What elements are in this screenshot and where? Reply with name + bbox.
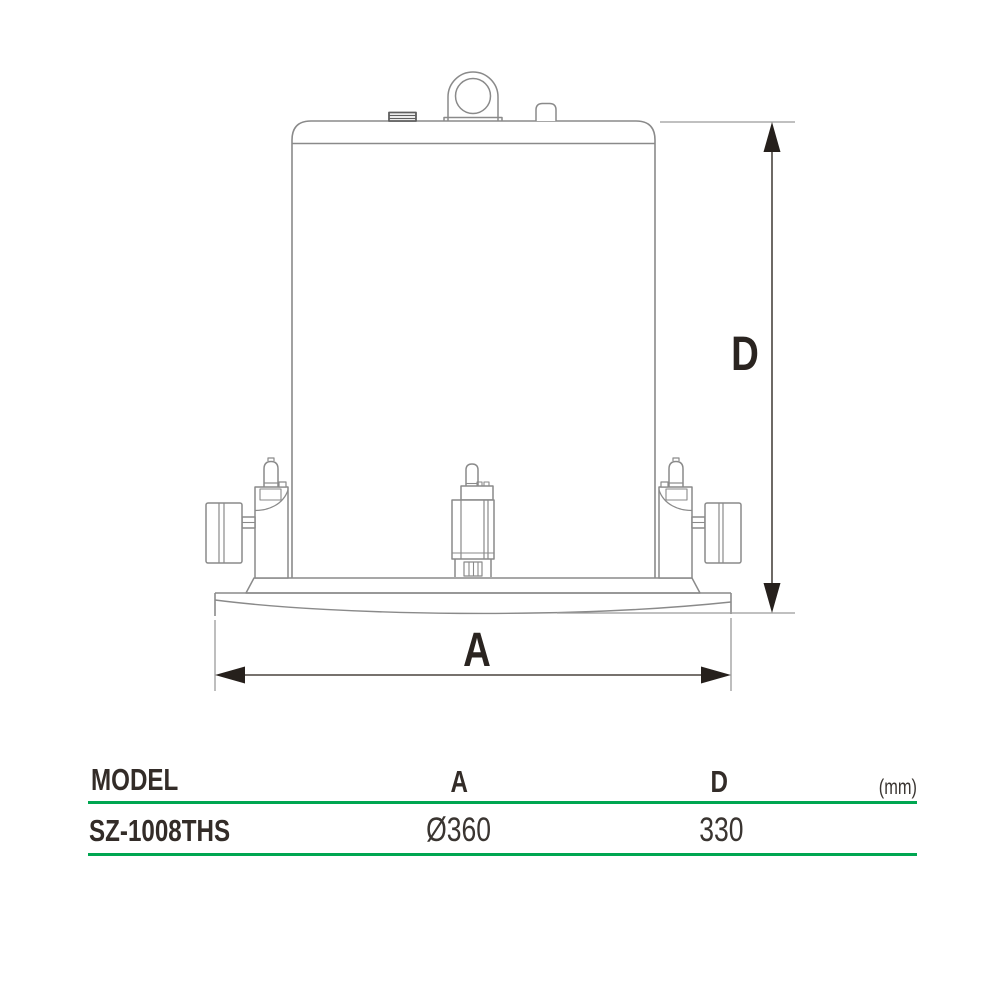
arrow-down-icon [764, 583, 781, 613]
table-header-model: MODEL [91, 762, 203, 798]
arrow-right-icon [701, 667, 731, 684]
top-terminal-block [389, 113, 416, 122]
top-bump [536, 104, 556, 122]
dimension-a: A [215, 618, 731, 691]
table-unit-label: (mm) [868, 776, 917, 800]
hanging-loop-icon [444, 72, 502, 121]
speaker-spec-sheet: D A MODEL A D (mm) SZ-1008 [0, 0, 1000, 1000]
arrow-up-icon [764, 122, 781, 152]
mounting-step-ring [246, 578, 700, 593]
table-divider-bottom [88, 853, 917, 856]
speaker-side-view-drawing: D A [0, 0, 1000, 760]
dimension-d-label: D [731, 328, 759, 381]
dimension-a-label: A [463, 624, 491, 677]
right-mounting-clamp [659, 458, 741, 578]
d-value-cell: 330 [621, 811, 821, 850]
table-header-a: A [359, 764, 559, 800]
table-divider-top [88, 801, 917, 804]
model-cell: SZ-1008THS [89, 813, 270, 849]
arrow-left-icon [215, 667, 245, 684]
table-header-d: D [619, 764, 819, 800]
left-mounting-clamp [206, 458, 288, 578]
a-value-cell: Ø360 [359, 811, 559, 850]
